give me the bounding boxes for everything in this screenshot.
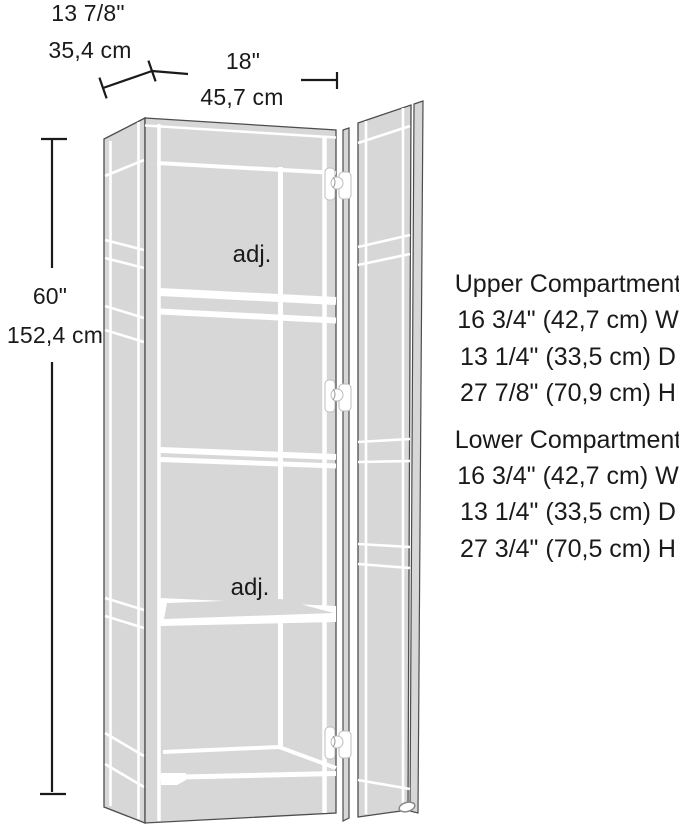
upper-compartment-width: 16 3/4" (42,7 cm) W	[452, 302, 679, 338]
height-dimension-cm-label: 152,4 cm	[5, 323, 105, 348]
cabinet-front	[145, 118, 336, 823]
lower-compartment-title: Lower Compartment	[452, 422, 679, 458]
product-dimension-diagram: 13 7/8" 35,4 cm 18" 45,7 cm 60" 152,4 cm…	[0, 0, 679, 826]
upper-compartment-height: 27 7/8" (70,9 cm) H	[452, 375, 679, 411]
depth-dimension-cm-label: 35,4 cm	[40, 38, 140, 63]
lower-compartment-specs: Lower Compartment 16 3/4" (42,7 cm) W 13…	[452, 422, 679, 568]
upper-compartment-depth: 13 1/4" (33,5 cm) D	[452, 339, 679, 375]
lower-adjustable-shelf-label: adj.	[200, 574, 300, 602]
lower-compartment-height: 27 3/4" (70,5 cm) H	[452, 531, 679, 567]
upper-adjustable-shelf-label: adj.	[202, 241, 302, 269]
door-hinge-bottom	[325, 727, 351, 759]
lower-compartment-width: 16 3/4" (42,7 cm) W	[452, 458, 679, 494]
compartment-specs: Upper Compartment 16 3/4" (42,7 cm) W 13…	[452, 266, 679, 567]
upper-compartment-title: Upper Compartment	[452, 266, 679, 302]
open-door	[343, 101, 423, 821]
width-dimension-cm-label: 45,7 cm	[192, 85, 292, 110]
door-hinge-top	[325, 168, 351, 200]
door-hinge-middle	[325, 380, 351, 412]
height-dimension-line	[40, 139, 67, 794]
height-dimension-inches-label: 60"	[0, 284, 100, 309]
width-dimension-inches-label: 18"	[193, 49, 293, 74]
upper-compartment-specs: Upper Compartment 16 3/4" (42,7 cm) W 13…	[452, 266, 679, 412]
cabinet-side-panel	[104, 118, 145, 823]
lower-compartment-depth: 13 1/4" (33,5 cm) D	[452, 494, 679, 530]
depth-dimension-line	[99, 61, 155, 99]
depth-dimension-inches-label: 13 7/8"	[38, 1, 138, 26]
